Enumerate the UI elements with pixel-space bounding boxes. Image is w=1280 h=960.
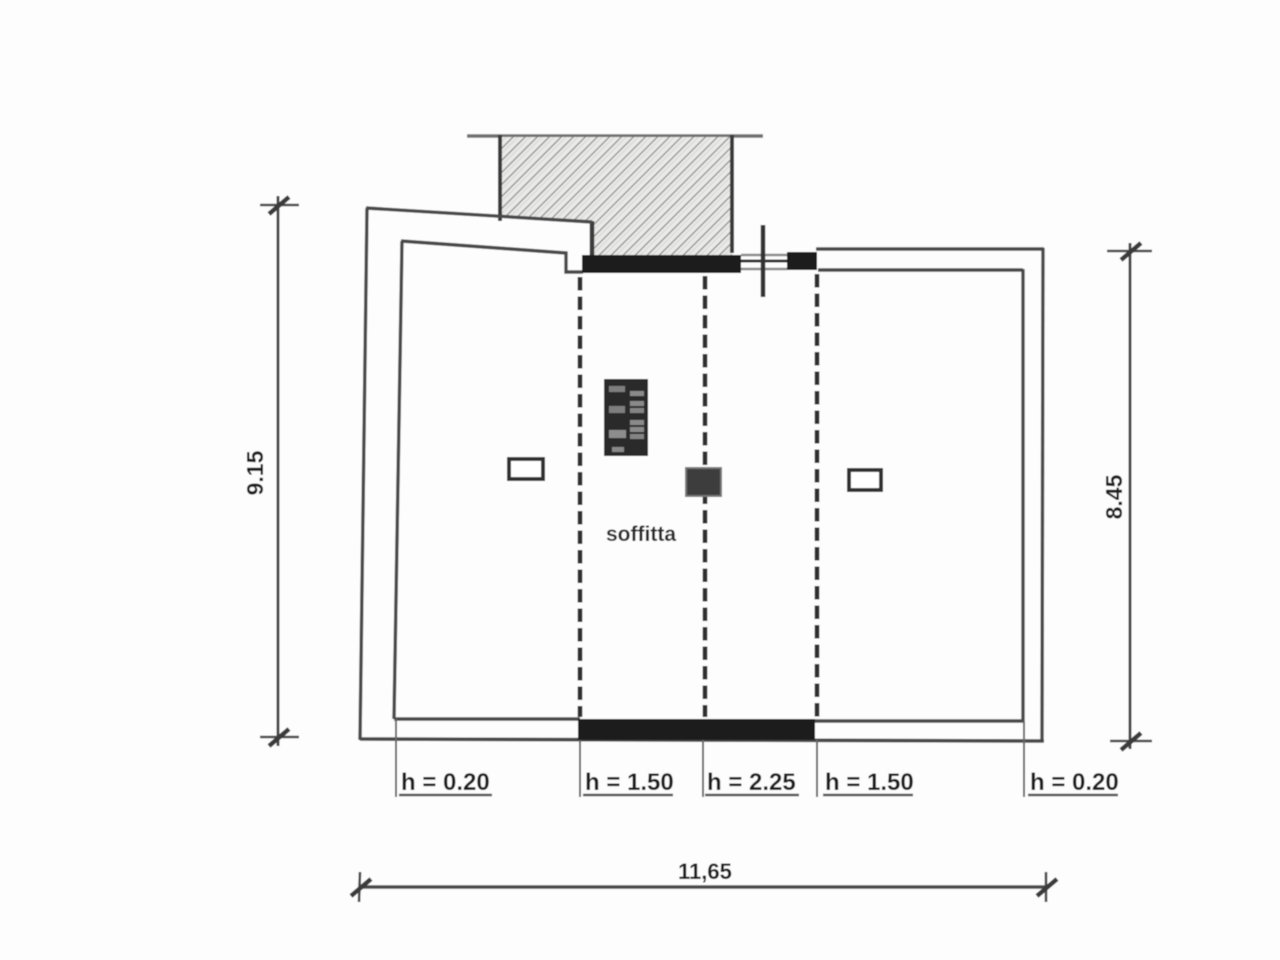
svg-text:h = 0.20: h = 0.20 xyxy=(401,769,490,796)
svg-text:h = 0.20: h = 0.20 xyxy=(1030,769,1119,796)
svg-text:soffitta: soffitta xyxy=(606,523,676,546)
svg-text:h = 2.25: h = 2.25 xyxy=(707,769,796,796)
svg-text:h = 1.50: h = 1.50 xyxy=(585,769,674,796)
svg-text:h = 1.50: h = 1.50 xyxy=(825,769,914,796)
svg-text:11,65: 11,65 xyxy=(678,859,732,884)
svg-text:8.45: 8.45 xyxy=(1101,474,1127,519)
svg-text:9.15: 9.15 xyxy=(242,450,268,495)
